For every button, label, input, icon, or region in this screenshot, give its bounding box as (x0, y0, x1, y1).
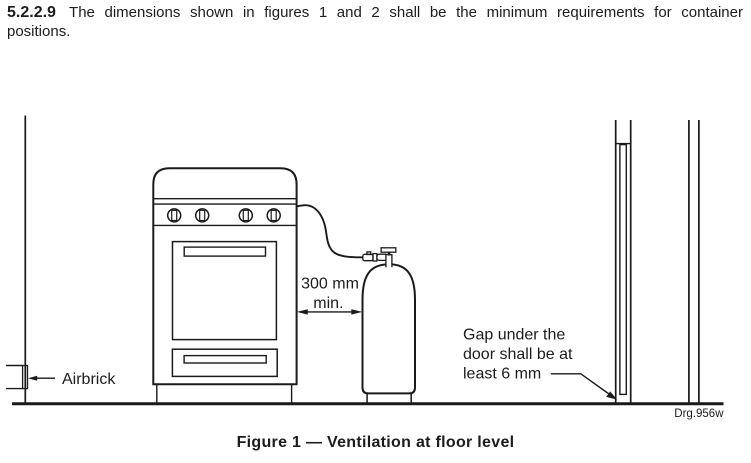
svg-text:Drg.956w: Drg.956w (674, 408, 724, 420)
svg-text:300 mm: 300 mm (301, 275, 359, 292)
svg-text:Airbrick: Airbrick (62, 371, 116, 388)
svg-text:min.: min. (313, 295, 343, 312)
svg-text:door shall be at: door shall be at (463, 346, 573, 363)
svg-text:Gap under the: Gap under the (463, 327, 565, 344)
svg-text:least 6 mm: least 6 mm (463, 365, 541, 382)
